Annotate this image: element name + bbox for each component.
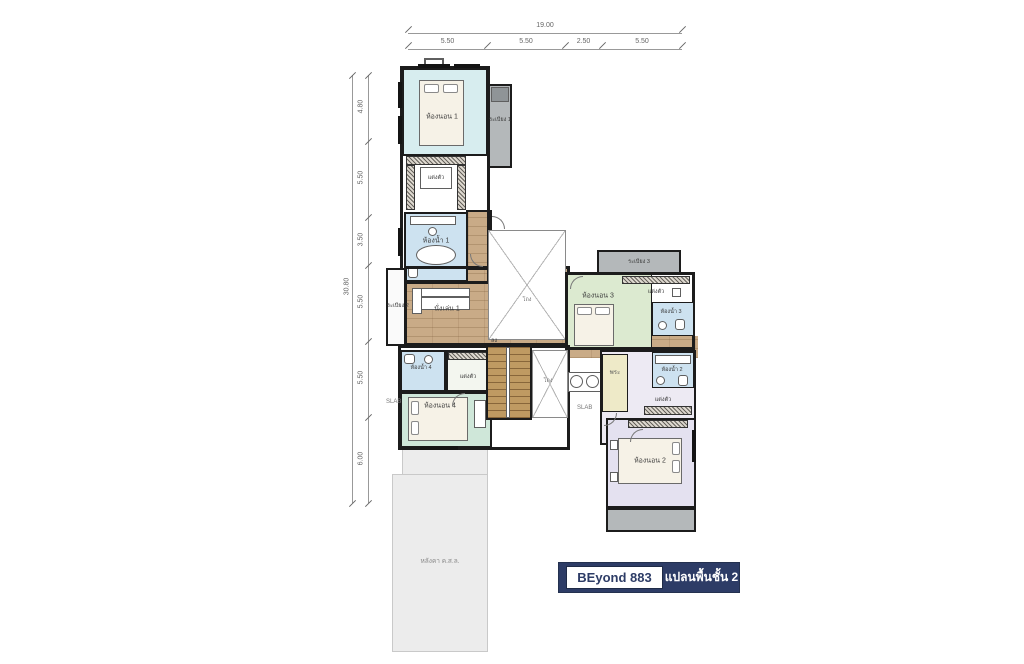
wardrobe-hatch (406, 156, 466, 165)
stair-stringer (506, 347, 510, 418)
window (398, 82, 402, 108)
balcony3-label: ระเบียง 3 (628, 258, 650, 266)
pillow (443, 84, 458, 93)
wardrobe-hatch (457, 165, 466, 210)
window (454, 64, 480, 68)
wardrobe-hatch (406, 165, 415, 210)
bedroom4-label: ห้องนอน 4 (424, 401, 456, 412)
bedroom1-label: ห้องนอน 1 (426, 112, 458, 123)
bedroom3-label: ห้องนอน 3 (582, 291, 614, 302)
dim-left-total: 30.80 (344, 270, 351, 304)
model-name-badge: BEyond 883 (566, 566, 663, 589)
pillow (411, 401, 419, 415)
ac-unit (491, 87, 509, 102)
dim-top-seg-2: 5.50 (487, 38, 565, 45)
window (418, 64, 450, 68)
balcony-bedroom2 (606, 508, 696, 532)
dim-tick (349, 500, 356, 507)
side-table (610, 472, 618, 482)
bathtub-icon (416, 245, 456, 265)
pillow (424, 84, 439, 93)
dim-left-seg-5: 5.50 (358, 361, 365, 395)
sofa-arm (412, 288, 422, 314)
dim-left-seg-6: 6.00 (358, 442, 365, 476)
desk (474, 400, 486, 428)
wardrobe-hatch (448, 352, 490, 360)
hall-void1-label: โถง (523, 296, 532, 304)
window (420, 446, 458, 450)
dim-tick (405, 42, 412, 49)
bathroom3-label: ห้องน้ำ 3 (660, 308, 681, 316)
wardrobe-hatch (622, 276, 690, 284)
bathroom4-label: ห้องน้ำ 4 (410, 364, 431, 372)
sink-icon (658, 321, 667, 330)
dim-left-seg-2: 5.50 (358, 161, 365, 195)
roof-slab-upper (402, 446, 488, 476)
pillow (595, 307, 610, 315)
roof-slab-label: หลังคา ค.ส.ล. (421, 556, 460, 566)
wc-fixture (672, 288, 681, 297)
sink-icon (656, 376, 665, 385)
hall-void2-label: โถง (544, 377, 553, 385)
dressing1-label: แต่งตัว (428, 174, 444, 182)
living1-label: นั่งเล่น 1 (434, 304, 460, 315)
dim-top-seg-4: 5.50 (602, 38, 682, 45)
wardrobe-hatch (628, 420, 688, 428)
toilet-icon (404, 354, 415, 364)
toilet-icon (408, 266, 418, 278)
dim-left-seg-4: 5.50 (358, 285, 365, 319)
window (398, 228, 402, 256)
dim-tick (365, 500, 372, 507)
void-hall1 (488, 230, 566, 340)
toilet-icon (675, 319, 685, 330)
room-prayer (602, 354, 628, 412)
slab-left-label: SLAB (386, 399, 401, 405)
pillow (672, 442, 680, 455)
dim-left-seg-3: 3.50 (358, 223, 365, 257)
balcony2-label: ระเบียง 2 (387, 302, 409, 310)
dim-top-seg-3: 2.50 (565, 38, 602, 45)
balcony1-label: ระเบียง 1 (489, 116, 511, 124)
side-table (610, 440, 618, 450)
floor-plan-canvas: 19.00 5.50 5.50 2.50 5.50 30.80 4.80 5.5… (0, 0, 1024, 664)
pillow (411, 421, 419, 435)
dim-top-total-line (408, 33, 682, 34)
dim-top-total: 19.00 (408, 22, 682, 29)
toilet-icon (678, 375, 688, 386)
dressing2-label: แต่งตัว (655, 396, 671, 404)
bathroom2-label: ห้องน้ำ 2 (661, 366, 682, 374)
dressing3-label: แต่งตัว (648, 288, 664, 296)
slab-center-label: SLAB (577, 405, 592, 411)
dim-top-seg-1: 5.50 (408, 38, 487, 45)
window (398, 116, 402, 144)
window (692, 430, 696, 462)
dim-top-seg-line (408, 49, 682, 50)
bathtub-icon (655, 355, 691, 364)
dressing4-label: แต่งตัว (460, 373, 476, 381)
sink-icon (424, 355, 433, 364)
dim-left-total-line (352, 75, 353, 503)
title-block: BEyond 883 แปลนพื้นชั้น 2 (558, 562, 740, 593)
sink-icon (586, 375, 599, 388)
stairs-down-label: ลง (491, 337, 497, 345)
wardrobe-hatch (644, 406, 692, 415)
sink-icon (570, 375, 583, 388)
dim-left-seg-1: 4.80 (358, 90, 365, 124)
plan-name-label: แปลนพื้นชั้น 2 (663, 568, 740, 587)
prayer-label: พระ (610, 367, 620, 377)
bedroom2-label: ห้องนอน 2 (634, 456, 666, 467)
pillow (672, 460, 680, 473)
dim-tick (405, 26, 412, 33)
door-arc (492, 216, 505, 229)
vanity-counter (410, 216, 456, 225)
pillow (577, 307, 592, 315)
